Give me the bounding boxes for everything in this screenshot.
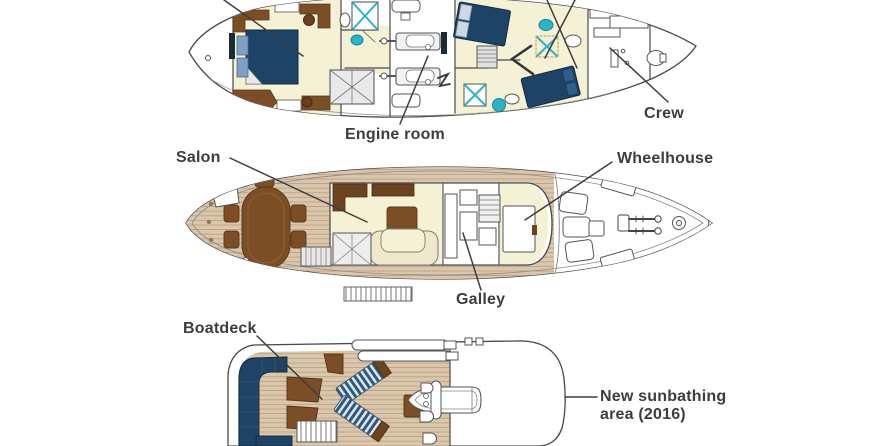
label-wheelhouse: Wheelhouse [617,150,713,168]
master-bed [237,30,298,84]
u-seating-aft [256,436,292,446]
master-door [229,33,235,59]
cleat [234,257,249,267]
salon-sideboard [372,184,414,196]
lower-deck-plan [189,0,696,123]
label-salon: Salon [176,149,221,167]
salon-settee [370,229,438,265]
galley-stairs [479,195,500,222]
label-crew: Crew [644,105,684,123]
label-sunbathing-line2: area (2016) [600,406,726,424]
main-deck-plan [186,160,714,301]
boatdeck-plan [228,338,565,446]
deck-grate [297,421,337,442]
label-sunbathing-area: New sunbathing area (2016) [600,388,726,424]
capstan [673,217,686,230]
label-sunbathing-line1: New sunbathing [600,388,726,406]
cockpit-table [287,377,322,402]
engine-room-door [441,32,447,54]
helm-seat [532,225,537,235]
guest-stairs [477,46,497,68]
davits [352,340,458,361]
aft-dining-table [242,187,290,269]
deck-plan-drawing [0,0,890,446]
helm-console [503,206,535,252]
gangway [344,287,412,301]
label-galley: Galley [456,291,505,309]
label-boatdeck: Boatdeck [183,320,257,338]
label-engine-room: Engine room [345,126,445,144]
yacht-deck-plans: Engine room Crew Salon Wheelhouse Galley… [0,0,890,446]
fan-staircase [330,70,374,104]
